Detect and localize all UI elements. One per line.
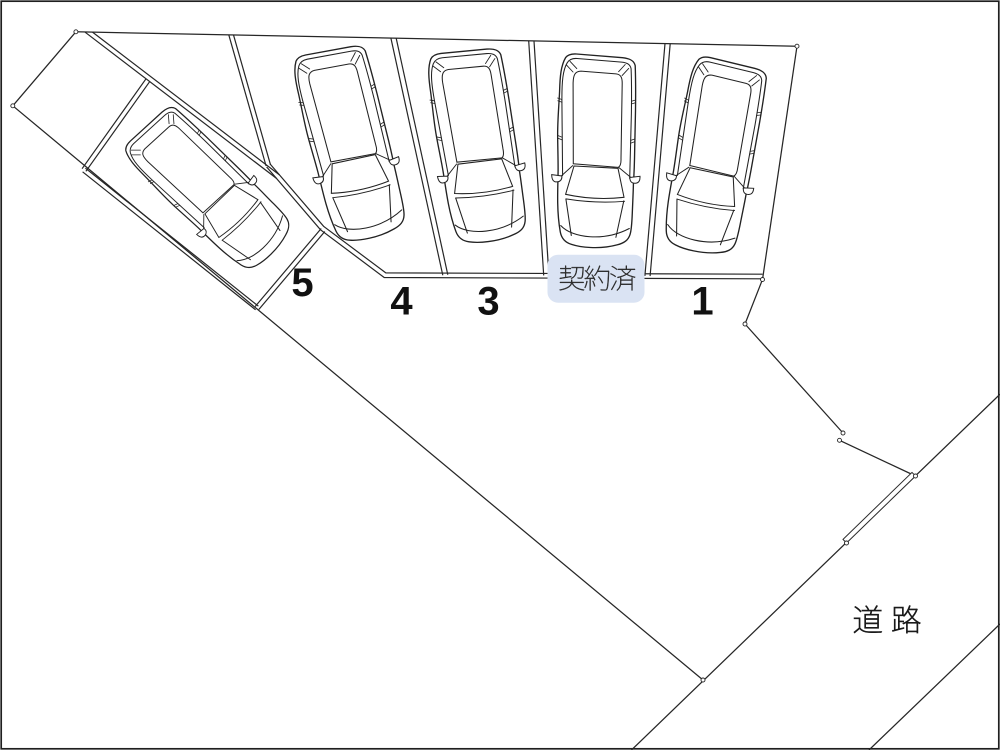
svg-text:1: 1 [691, 280, 713, 324]
svg-text:4: 4 [390, 280, 413, 324]
svg-text:3: 3 [477, 280, 499, 324]
svg-text:5: 5 [291, 261, 313, 305]
